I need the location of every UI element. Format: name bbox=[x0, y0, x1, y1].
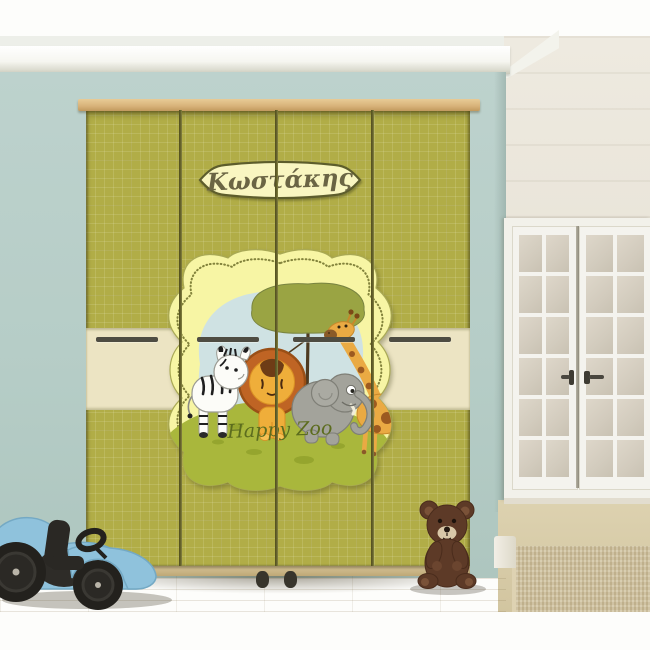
glass-pane bbox=[519, 276, 542, 313]
glass-pane bbox=[546, 399, 569, 436]
wardrobe-handle bbox=[96, 337, 158, 342]
door-gap bbox=[275, 110, 278, 566]
rug bbox=[512, 546, 650, 612]
name-banner-sticker: Κωστάκης bbox=[195, 158, 365, 202]
teddy-eye bbox=[452, 519, 456, 523]
glass-pane bbox=[617, 276, 644, 313]
happy-zoo-decal: Happy Zoo bbox=[158, 246, 402, 496]
wardrobe-caster bbox=[256, 571, 269, 588]
door-threshold bbox=[504, 498, 650, 504]
glass-pane bbox=[546, 235, 569, 272]
glass-pane bbox=[586, 276, 613, 313]
teddy-eye bbox=[438, 519, 442, 523]
glass-pane bbox=[546, 276, 569, 313]
glass-pane bbox=[617, 358, 644, 395]
glass-pane bbox=[546, 440, 569, 477]
wardrobe-handle bbox=[197, 337, 259, 342]
french-door-right-leaf bbox=[579, 226, 650, 490]
door-handle-left bbox=[569, 370, 574, 385]
glass-pane bbox=[617, 317, 644, 354]
door-handle-right bbox=[584, 371, 590, 384]
glass-pane bbox=[519, 399, 542, 436]
wardrobe-top-board bbox=[78, 99, 480, 111]
teddy-bear bbox=[398, 496, 498, 596]
glass-pane bbox=[519, 440, 542, 477]
wardrobe-handle bbox=[389, 337, 451, 342]
banner-name-text: Κωστάκης bbox=[205, 162, 353, 196]
decal-caption-text: Happy Zoo bbox=[226, 417, 333, 443]
wardrobe-handle bbox=[293, 337, 355, 342]
glass-pane bbox=[519, 317, 542, 354]
crown-molding bbox=[0, 46, 510, 74]
toy-car bbox=[0, 496, 182, 614]
glass-pane bbox=[519, 235, 542, 272]
glass-pane bbox=[519, 358, 542, 395]
french-door-left-leaf bbox=[512, 226, 578, 490]
glass-pane-grid bbox=[519, 235, 569, 477]
glass-pane bbox=[617, 235, 644, 272]
glass-pane bbox=[617, 440, 644, 477]
glass-pane bbox=[586, 235, 613, 272]
glass-pane bbox=[586, 317, 613, 354]
glass-pane bbox=[617, 399, 644, 436]
glass-pane bbox=[586, 440, 613, 477]
glass-pane bbox=[546, 317, 569, 354]
nursery-room-photo: Κωστάκης bbox=[0, 0, 650, 650]
glass-pane-grid bbox=[586, 235, 644, 477]
teddy-nose bbox=[444, 527, 450, 533]
glass-pane bbox=[586, 399, 613, 436]
wardrobe-caster bbox=[284, 571, 297, 588]
door-meeting-seam bbox=[576, 226, 579, 488]
door-gap bbox=[371, 110, 374, 566]
